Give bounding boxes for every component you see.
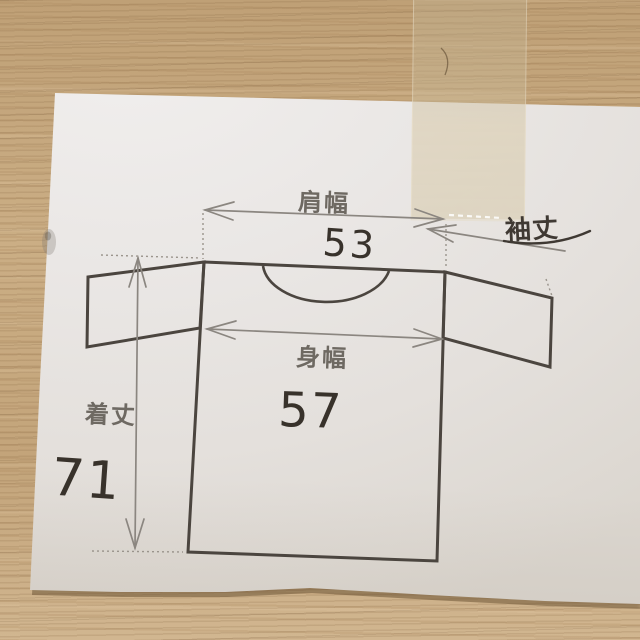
neckline (263, 266, 389, 302)
paper-smudge (42, 229, 56, 255)
tape-fiber (441, 48, 448, 75)
garment-length-label: 着丈 (84, 400, 137, 430)
white-dashes-on-tape (449, 215, 502, 218)
photo-of-size-diagram: 肩幅 身幅 着丈 袖丈 53 57 71 (0, 0, 640, 640)
tshirt-right-sleeve (443, 272, 552, 367)
body-width-value: 57 (277, 382, 344, 440)
body-width-label: 身幅 (296, 343, 349, 373)
shoulder-width-value: 53 (321, 220, 378, 268)
garment-length-value: 71 (49, 448, 123, 513)
shoulder-width-label: 肩幅 (298, 188, 351, 218)
size-diagram: 肩幅 身幅 着丈 袖丈 53 57 71 (0, 0, 640, 640)
tshirt-left-sleeve (87, 262, 204, 347)
sleeve-length-annotation: 袖丈 (504, 213, 590, 247)
